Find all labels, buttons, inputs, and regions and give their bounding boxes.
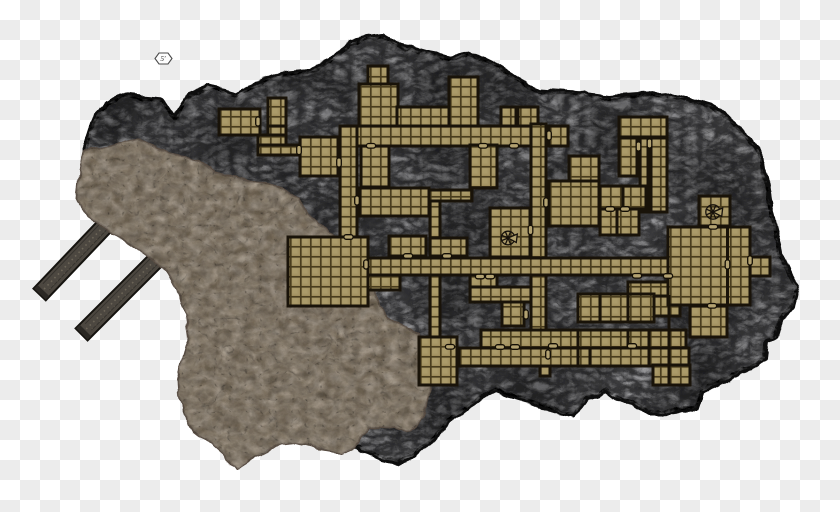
svg-text:5': 5' xyxy=(161,55,167,63)
